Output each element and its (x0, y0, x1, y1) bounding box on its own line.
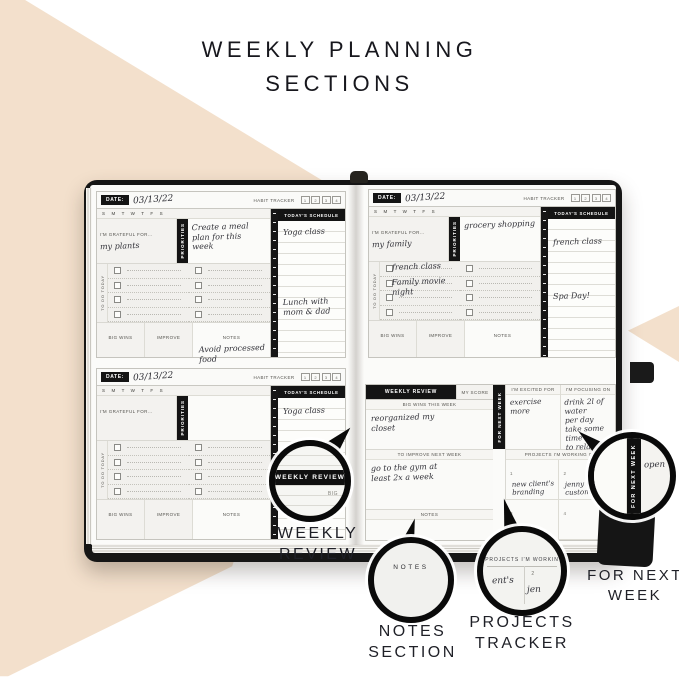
project-number: 2 (563, 471, 566, 476)
todo-checkbox (114, 311, 121, 318)
todo-tab-label: TO DO TODAY (372, 273, 377, 309)
todo-item (189, 293, 270, 308)
daily-header: DATE: 03/13/22 HABIT TRACKER 1 2 3 4 (97, 192, 345, 208)
callout-circle-weekly-review: WEEKLY REVIEW BIG (269, 440, 351, 522)
habit-tracker-label: HABIT TRACKER (253, 375, 294, 380)
todo-checkbox (195, 296, 202, 303)
daily-page-top-right: DATE: 03/13/22 HABIT TRACKER 1 2 3 4 S M… (368, 189, 616, 358)
grateful-cell: I'M GRATEFUL FOR... my plants (97, 219, 177, 263)
schedule-main: TODAY'S SCHEDULE french class Spa Day! (548, 207, 615, 357)
todo-tab-label: TO DO TODAY (100, 275, 105, 311)
priorities-tab: PRIORITIES (449, 217, 460, 261)
todo-item (460, 262, 540, 277)
habit-tracker-boxes: 1 2 3 4 (571, 194, 612, 202)
habit-box: 3 (322, 196, 331, 204)
todo-checkbox (466, 280, 473, 287)
for-next-week-tab-label: FOR NEXT WEEK (497, 392, 502, 443)
date-handwriting: 03/13/22 (405, 192, 446, 205)
todo-item (189, 308, 270, 323)
todo-item (108, 456, 189, 471)
callout-label-weekly-review: WEEKLY REVIEW (258, 524, 378, 566)
magnified-next-week-text: FOR NEXT WEEK (631, 444, 637, 508)
magnified-next-week-band: FOR NEXT WEEK (627, 435, 641, 517)
title-line-1: WEEKLY PLANNING (0, 33, 679, 67)
todo-item (108, 264, 189, 279)
habit-box: 1 (301, 196, 310, 204)
callout-label-line: PROJECTS (462, 613, 582, 634)
grateful-entry: my plants (100, 240, 173, 252)
todo-grid: french class Family movie night (380, 262, 540, 320)
schedule-entry: french class (553, 236, 613, 248)
big-wins-week-label: BIG WINS THIS WEEK (366, 400, 493, 410)
grateful-priorities-row: I'M GRATEFUL FOR... my plants PRIORITIES… (97, 219, 270, 264)
excited-cell: I'M EXCITED FOR exercise more (506, 385, 560, 449)
excited-label: I'M EXCITED FOR (506, 385, 560, 395)
habit-box: 2 (311, 373, 320, 381)
my-score-label: MY SCORE (461, 390, 488, 395)
todo-checkbox (195, 459, 202, 466)
grateful-entry: my family (372, 238, 445, 250)
todo-item (189, 264, 270, 279)
magnified-hline (487, 566, 557, 567)
todo-item (460, 291, 540, 306)
callout-label-line: NOTES (355, 622, 470, 643)
ribbon-bookmark-tab (630, 362, 654, 383)
todo-checkbox (466, 265, 473, 272)
todo-entry: french class (392, 261, 441, 272)
magnified-projects-text: PROJECTS I'M WORKIN (483, 557, 561, 563)
priorities-tab: PRIORITIES (177, 219, 188, 263)
habit-box: 4 (332, 373, 341, 381)
wins-row: BIG WINS IMPROVE NOTES (369, 321, 540, 357)
schedule-entry: Spa Day! (553, 290, 613, 302)
grateful-label: I'M GRATEFUL FOR... (372, 230, 425, 235)
callout-label-line: TRACKER (462, 634, 582, 655)
grateful-cell: I'M GRATEFUL FOR... (97, 396, 177, 440)
next-week-tab-column: FOR NEXT WEEK (493, 385, 506, 540)
callout-label-next-week: FOR NEXT WEEK (585, 566, 679, 605)
todo-checkbox (114, 444, 121, 451)
habit-box: 2 (311, 196, 320, 204)
project-number: 4 (563, 511, 566, 516)
todo-item (108, 470, 189, 485)
schedule-header: TODAY'S SCHEDULE (548, 207, 615, 219)
todo-item (108, 279, 189, 294)
schedule-column: TODAY'S SCHEDULE french class Spa Day! (541, 207, 615, 357)
callout-circle-next-week: FOR NEXT WEEK open (588, 432, 676, 520)
notes-cell: NOTES (465, 321, 540, 357)
notes-cell: NOTES Avoid processed food (193, 323, 270, 357)
wins-row: BIG WINS IMPROVE NOTES Avoid processed f… (97, 323, 270, 357)
habit-box: 3 (592, 194, 601, 202)
improve-next-week-entry: go to the gym at least 2x a week (371, 460, 494, 483)
todo-item (189, 456, 270, 471)
todo-item (108, 441, 189, 456)
schedule-header: TODAY'S SCHEDULE (278, 386, 345, 398)
improve-cell: IMPROVE (417, 321, 465, 357)
callout-label-line: FOR NEXT (585, 566, 679, 586)
todo-checkbox (195, 311, 202, 318)
daily-left-column: S M T W T F S I'M GRATEFUL FOR... PRIORI… (97, 386, 271, 539)
callout-label-line: REVIEW (258, 545, 378, 566)
project-cell: 1 new client's branding (506, 460, 559, 500)
todo-checkbox (386, 309, 393, 316)
schedule-header: TODAY'S SCHEDULE (278, 209, 345, 221)
todo-checkbox (114, 459, 121, 466)
date-chip: DATE: (101, 372, 129, 382)
elastic-band-nub (350, 171, 368, 183)
schedule-main: TODAY'S SCHEDULE Yoga class Lunch with m… (278, 209, 345, 357)
todo-checkbox (114, 473, 121, 480)
todo-row: TO DO TODAY (97, 264, 270, 323)
grateful-cell: I'M GRATEFUL FOR... my family (369, 217, 449, 261)
title-line-2: SECTIONS (0, 67, 679, 101)
date-handwriting: 03/13/22 (133, 194, 174, 207)
callout-circle-projects: PROJECTS I'M WORKIN 2 ent's jen (477, 526, 567, 616)
schedule-lines: french class Spa Day! (548, 219, 615, 357)
book-gutter-shadow (348, 185, 364, 545)
daily-body: S M T W T F S I'M GRATEFUL FOR... my fam… (369, 206, 615, 357)
weekly-header-row: WEEKLY REVIEW MY SCORE (366, 385, 493, 400)
todo-entry: Family movie night (392, 276, 446, 297)
todo-item (189, 279, 270, 294)
todo-item (460, 306, 540, 321)
todo-checkbox (195, 444, 202, 451)
magnified-notes-text: NOTES (374, 564, 448, 571)
big-wins-cell: BIG WINS (369, 321, 417, 357)
magnified-vline (524, 566, 525, 604)
improve-next-week-cell: TO IMPROVE NEXT WEEK go to the gym at le… (366, 450, 493, 510)
priorities-entry-area: grocery shopping (460, 217, 540, 261)
notes-entry: Avoid processed food (199, 343, 271, 365)
todo-item: Family movie night (380, 277, 460, 292)
magnified-next-week-script: open (644, 460, 665, 471)
todo-checkbox (466, 309, 473, 316)
todo-item (108, 485, 189, 500)
page-title: WEEKLY PLANNING SECTIONS (0, 33, 679, 101)
improve-label: IMPROVE (429, 333, 453, 338)
grateful-label: I'M GRATEFUL FOR... (100, 409, 153, 414)
schedule-column: TODAY'S SCHEDULE Yoga class Lunch with m… (271, 209, 345, 357)
improve-next-week-label: TO IMPROVE NEXT WEEK (366, 450, 493, 460)
habit-tracker-label: HABIT TRACKER (523, 196, 564, 201)
big-wins-cell: BIG WINS (97, 323, 145, 357)
magnified-page-edge (594, 438, 627, 514)
weekly-review-page: WEEKLY REVIEW MY SCORE BIG WINS THIS WEE… (365, 384, 616, 541)
magnified-project-script: ent's (492, 576, 514, 588)
todo-item: french class (380, 262, 460, 277)
schedule-entry: Yoga class (283, 405, 343, 417)
todo-checkbox (195, 488, 202, 495)
callout-label-line: WEEKLY (258, 524, 378, 545)
magnified-partial-text: BIG (328, 491, 338, 497)
big-wins-label: BIG WINS (381, 333, 405, 338)
callout-circle-notes: NOTES (368, 537, 454, 623)
habit-tracker-label: HABIT TRACKER (253, 198, 294, 203)
grateful-label: I'M GRATEFUL FOR... (100, 232, 153, 237)
date-handwriting: 03/13/22 (133, 371, 174, 384)
for-next-week-tab: FOR NEXT WEEK (493, 385, 505, 449)
todo-tab-label: TO DO TODAY (100, 452, 105, 488)
grateful-priorities-row: I'M GRATEFUL FOR... PRIORITIES (97, 396, 270, 441)
big-wins-cell: BIG WINS (97, 500, 145, 539)
todo-checkbox (195, 282, 202, 289)
schedule-time-ruler (541, 207, 548, 357)
priorities-entry: Create a meal plan for this week (192, 221, 267, 252)
todo-item (189, 470, 270, 485)
big-wins-week-entry: reorganized my closet (371, 410, 494, 433)
improve-label: IMPROVE (157, 335, 181, 340)
todo-tab: TO DO TODAY (369, 262, 380, 320)
schedule-entry: Yoga class (283, 226, 343, 238)
habit-box: 4 (332, 196, 341, 204)
beige-triangle-right (628, 306, 679, 362)
callout-label-projects: PROJECTS TRACKER (462, 613, 582, 655)
habit-box: 1 (571, 194, 580, 202)
magnified-weekly-review-banner: WEEKLY REVIEW (272, 470, 348, 485)
daily-left-column: S M T W T F S I'M GRATEFUL FOR... my pla… (97, 209, 271, 357)
todo-item (380, 306, 460, 321)
todo-checkbox (195, 267, 202, 274)
page-stack-edge-left (86, 188, 92, 544)
weekday-row: S M T W T F S (97, 386, 270, 396)
notes-label: NOTES (223, 335, 241, 340)
schedule-time-ruler (271, 209, 278, 357)
habit-box: 3 (322, 373, 331, 381)
callout-label-line: SECTION (355, 643, 470, 664)
priorities-tab-label: PRIORITIES (180, 223, 185, 259)
daily-left-column: S M T W T F S I'M GRATEFUL FOR... my fam… (369, 207, 541, 357)
improve-cell: IMPROVE (145, 500, 193, 539)
todo-item (189, 441, 270, 456)
weekday-row: S M T W T F S (369, 207, 540, 217)
todo-item (108, 293, 189, 308)
daily-header: DATE: 03/13/22 HABIT TRACKER 1 2 3 4 (369, 190, 615, 206)
date-chip: DATE: (373, 193, 401, 203)
habit-tracker-boxes: 1 2 3 4 (301, 196, 342, 204)
daily-body: S M T W T F S I'M GRATEFUL FOR... my pla… (97, 208, 345, 357)
priorities-entry-area (188, 396, 270, 440)
priorities-tab-label: PRIORITIES (180, 400, 185, 436)
todo-row: TO DO TODAY (97, 441, 270, 500)
magnified-project-number: 2 (531, 571, 534, 577)
improve-cell: IMPROVE (145, 323, 193, 357)
todo-grid (108, 441, 270, 499)
todo-tab: TO DO TODAY (97, 264, 108, 322)
weekly-left-column: WEEKLY REVIEW MY SCORE BIG WINS THIS WEE… (366, 385, 493, 540)
todo-checkbox (195, 473, 202, 480)
habit-box: 2 (581, 194, 590, 202)
daily-page-top-left: DATE: 03/13/22 HABIT TRACKER 1 2 3 4 S M… (96, 191, 346, 358)
weekly-notes-label: NOTES (366, 510, 493, 520)
notes-label: NOTES (494, 333, 512, 338)
notes-label: NOTES (223, 512, 241, 517)
todo-item (189, 485, 270, 500)
priorities-entry-area: Create a meal plan for this week (188, 219, 270, 263)
todo-checkbox (114, 282, 121, 289)
magnified-project-script: jen (527, 585, 541, 596)
weekly-review-header: WEEKLY REVIEW (366, 385, 456, 399)
callout-label-notes: NOTES SECTION (355, 622, 470, 664)
weekly-notes-cell: NOTES (366, 510, 493, 540)
callout-label-line: WEEK (585, 586, 679, 606)
grateful-priorities-row: I'M GRATEFUL FOR... my family PRIORITIES… (369, 217, 540, 262)
date-chip: DATE: (101, 195, 129, 205)
todo-checkbox (114, 488, 121, 495)
habit-box: 4 (602, 194, 611, 202)
project-entry: new client's branding (512, 479, 559, 497)
todo-checkbox (466, 294, 473, 301)
priorities-tab-label: PRIORITIES (452, 221, 457, 257)
big-wins-label: BIG WINS (109, 335, 133, 340)
improve-label: IMPROVE (157, 512, 181, 517)
todo-checkbox (114, 267, 121, 274)
todo-item (108, 308, 189, 323)
daily-header: DATE: 03/13/22 HABIT TRACKER 1 2 3 4 (97, 369, 345, 385)
excited-entry: exercise more (510, 396, 561, 416)
big-wins-week-cell: BIG WINS THIS WEEK reorganized my closet (366, 400, 493, 450)
todo-checkbox (114, 296, 121, 303)
habit-tracker-boxes: 1 2 3 4 (301, 373, 342, 381)
todo-grid (108, 264, 270, 322)
project-number: 1 (510, 471, 513, 476)
todo-tab: TO DO TODAY (97, 441, 108, 499)
schedule-lines: Yoga class Lunch with mom & dad (278, 221, 345, 357)
wins-row: BIG WINS IMPROVE NOTES (97, 500, 270, 539)
todo-item (460, 277, 540, 292)
schedule-entry: Lunch with mom & dad (283, 296, 344, 317)
my-score-cell: MY SCORE (456, 385, 493, 399)
priorities-tab: PRIORITIES (177, 396, 188, 440)
priorities-entry: grocery shopping (464, 219, 536, 231)
weekday-row: S M T W T F S (97, 209, 270, 219)
focusing-label: I'M FOCUSING ON (561, 385, 615, 395)
habit-box: 1 (301, 373, 310, 381)
product-infographic: WEEKLY PLANNING SECTIONS DATE: 03/13/22 … (0, 0, 679, 679)
todo-row: TO DO TODAY french class Family movie ni… (369, 262, 540, 321)
big-wins-label: BIG WINS (109, 512, 133, 517)
